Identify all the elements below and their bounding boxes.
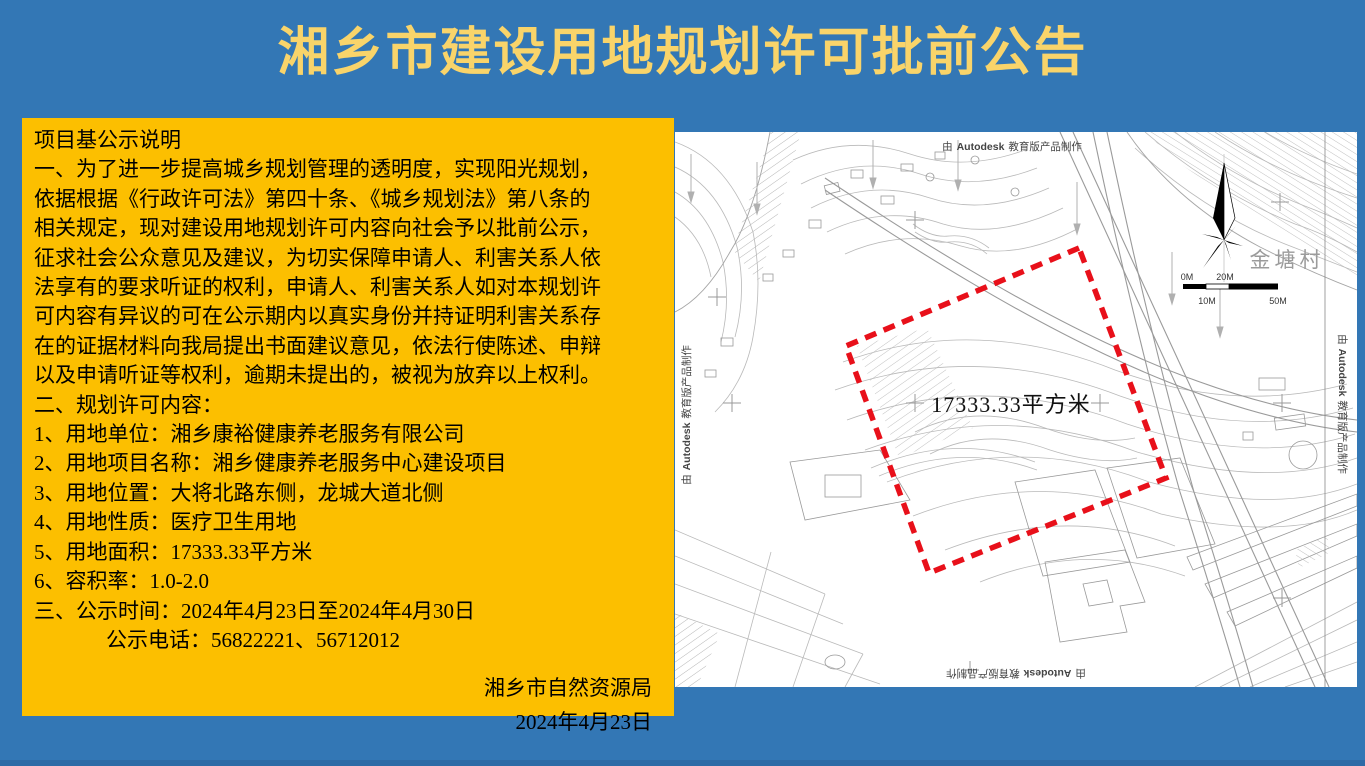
village-label: 金塘村 [1250,248,1325,272]
notice-panel: 项目基公示说明 一、为了进一步提高城乡规划管理的透明度，实现阳光规划， 依据根据… [22,118,674,716]
watermark-bottom: 由Autodesk教育版产品制作 [946,667,1086,680]
survey-cross-markers [708,193,1291,679]
notice-line: 法享有的要求听证的权利，申请人、利害关系人如对本规划许 [34,273,662,302]
notice-line: 三、公示时间：2024年4月23日至2024年4月30日 [34,597,662,626]
issue-date: 2024年4月23日 [34,705,652,739]
notice-heading: 项目基公示说明 [34,126,662,155]
issuer-name: 湘乡市自然资源局 [34,671,652,705]
field-lines-bottom-left [675,450,910,687]
notice-line: 3、用地位置：大将北路东侧，龙城大道北侧 [34,479,662,508]
contour-lines-top-center [793,145,1079,254]
notice-line: 1、用地单位：湘乡康裕健康养老服务有限公司 [34,420,662,449]
notice-line: 征求社会公众意见及建议，为切实保障申请人、利害关系人依 [34,244,662,273]
site-plan-map: 金塘村 0M 20M 10M 50M 17333.33平方米 由Autodesk… [675,132,1357,687]
scale-label-10m: 10M [1198,296,1216,306]
watermark-left: 由Autodesk教育版产品制作 [680,345,693,485]
notice-line: 二、规划许可内容： [34,391,662,420]
notice-line: 可内容有异议的可在公示期内以真实身份并持证明利害关系存 [34,302,662,331]
field-strips-bottom-right [1187,378,1357,687]
contour-lines-top-left [675,132,801,412]
scale-label-0m: 0M [1181,272,1194,282]
field-plots-bottom-center [1015,458,1215,642]
page-title: 湘乡市建设用地规划许可批前公告 [0,10,1365,85]
contour-lines-central-hill [835,328,1357,582]
scale-label-20m: 20M [1216,272,1234,282]
watermark-right: 由Autodesk教育版产品制作 [1336,334,1349,474]
notice-line: 6、容积率：1.0-2.0 [34,567,662,596]
notice-line: 依据根据《行政许可法》第四十条、《城乡规划法》第八条的 [34,185,662,214]
scale-label-50m: 50M [1269,296,1287,306]
notice-line: 在的证据材料向我局提出书面建议意见，依法行使陈述、申辩 [34,332,662,361]
bottom-edge-strip [0,760,1365,766]
scale-bar: 0M 20M 10M 50M [1181,272,1287,306]
notice-line: 一、为了进一步提高城乡规划管理的透明度，实现阳光规划， [34,155,662,184]
notice-line: 相关规定，现对建设用地规划许可内容向社会予以批前公示， [34,214,662,243]
watermark-top: 由Autodesk教育版产品制作 [942,140,1082,153]
notice-line: 以及申请听证等权利，逾期未提出的，被视为放弃以上权利。 [34,361,662,390]
notice-phone-line: 公示电话：56822221、56712012 [34,626,662,655]
notice-line: 5、用地面积：17333.33平方米 [34,538,662,567]
notice-line: 4、用地性质：医疗卫生用地 [34,508,662,537]
notice-line: 2、用地项目名称：湘乡健康养老服务中心建设项目 [34,449,662,478]
parcel-area-label: 17333.33平方米 [931,392,1091,417]
